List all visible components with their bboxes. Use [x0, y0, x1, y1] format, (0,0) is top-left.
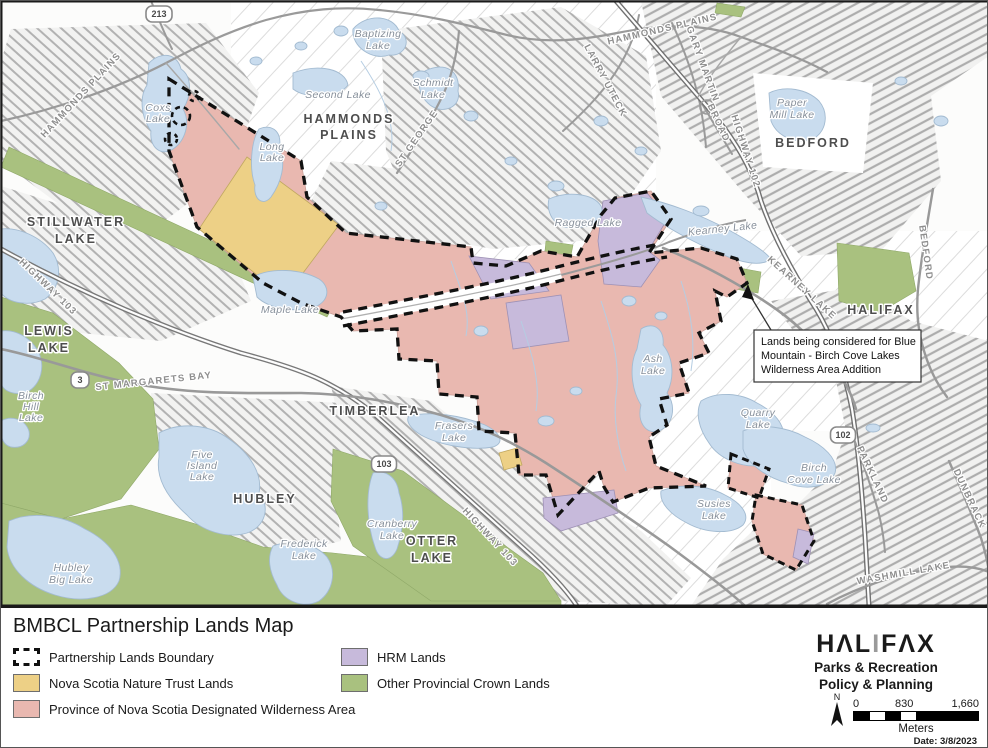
route-shield: 103: [372, 456, 397, 472]
dept-line-2: Policy & Planning: [781, 676, 971, 693]
callout-text-line: Lands being considered for Blue: [761, 336, 916, 348]
legend-item-hrm: HRM Lands: [341, 648, 446, 666]
date-label: Date: 3/8/2023: [914, 736, 977, 747]
map-label: AshLake: [641, 353, 665, 377]
legend-item-crown: Other Provincial Crown Lands: [341, 674, 550, 692]
svg-text:3: 3: [77, 375, 82, 385]
map-canvas: 2133103102 HAMMONDSPLAINSSTILLWATERLAKEL…: [1, 1, 988, 606]
halifax-branding: HΛLIFΛX Parks & Recreation Policy & Plan…: [781, 630, 971, 693]
map-label: LongLake: [260, 141, 285, 164]
dept-line-1: Parks & Recreation: [781, 659, 971, 676]
map-label: BEDFORD: [775, 136, 851, 150]
map-label: Second Lake: [305, 89, 371, 101]
map-label: SusiesLake: [697, 498, 731, 522]
scale-unit: Meters: [853, 723, 979, 735]
boundary-swatch: [13, 648, 40, 666]
svg-text:213: 213: [151, 9, 166, 19]
hrm-swatch: [341, 648, 368, 666]
svg-text:102: 102: [835, 430, 850, 440]
map-label: HubleyBig Lake: [49, 562, 93, 586]
nature-trust-swatch: [13, 674, 40, 692]
map-label: HUBLEY: [233, 492, 296, 506]
north-arrow: N: [827, 692, 847, 733]
scale-bar: 0 830 1,660 Meters: [853, 698, 979, 735]
map-label: HALIFAX: [847, 303, 914, 317]
route-shield: 102: [831, 427, 856, 443]
wilderness-swatch: [13, 700, 40, 718]
map-label: CoxsLake: [145, 102, 171, 125]
map-document: 2133103102 HAMMONDSPLAINSSTILLWATERLAKEL…: [0, 0, 988, 748]
callout-text-line: Wilderness Area Addition: [761, 364, 881, 376]
legend-item-wilderness: Province of Nova Scotia Designated Wilde…: [13, 700, 355, 718]
map-label: TIMBERLEA: [330, 404, 421, 418]
callout-text-line: Mountain - Birch Cove Lakes: [761, 350, 900, 362]
legend-item-boundary: Partnership Lands Boundary: [13, 648, 214, 666]
svg-text:103: 103: [376, 459, 391, 469]
legend-item-nature-trust: Nova Scotia Nature Trust Lands: [13, 674, 233, 692]
route-shield: 3: [71, 372, 89, 388]
halifax-logo: HΛLIFΛX: [781, 630, 971, 659]
scale-bar-graphic: [853, 711, 979, 721]
map-label: Ragged Lake: [555, 217, 622, 229]
map-label: Maple Lake: [261, 304, 319, 316]
page-title: BMBCL Partnership Lands Map: [13, 615, 294, 638]
crown-swatch: [341, 674, 368, 692]
route-shield: 213: [146, 6, 172, 22]
north-arrow-icon: [829, 702, 845, 728]
legend-panel: BMBCL Partnership Lands Map Partnership …: [1, 606, 988, 748]
